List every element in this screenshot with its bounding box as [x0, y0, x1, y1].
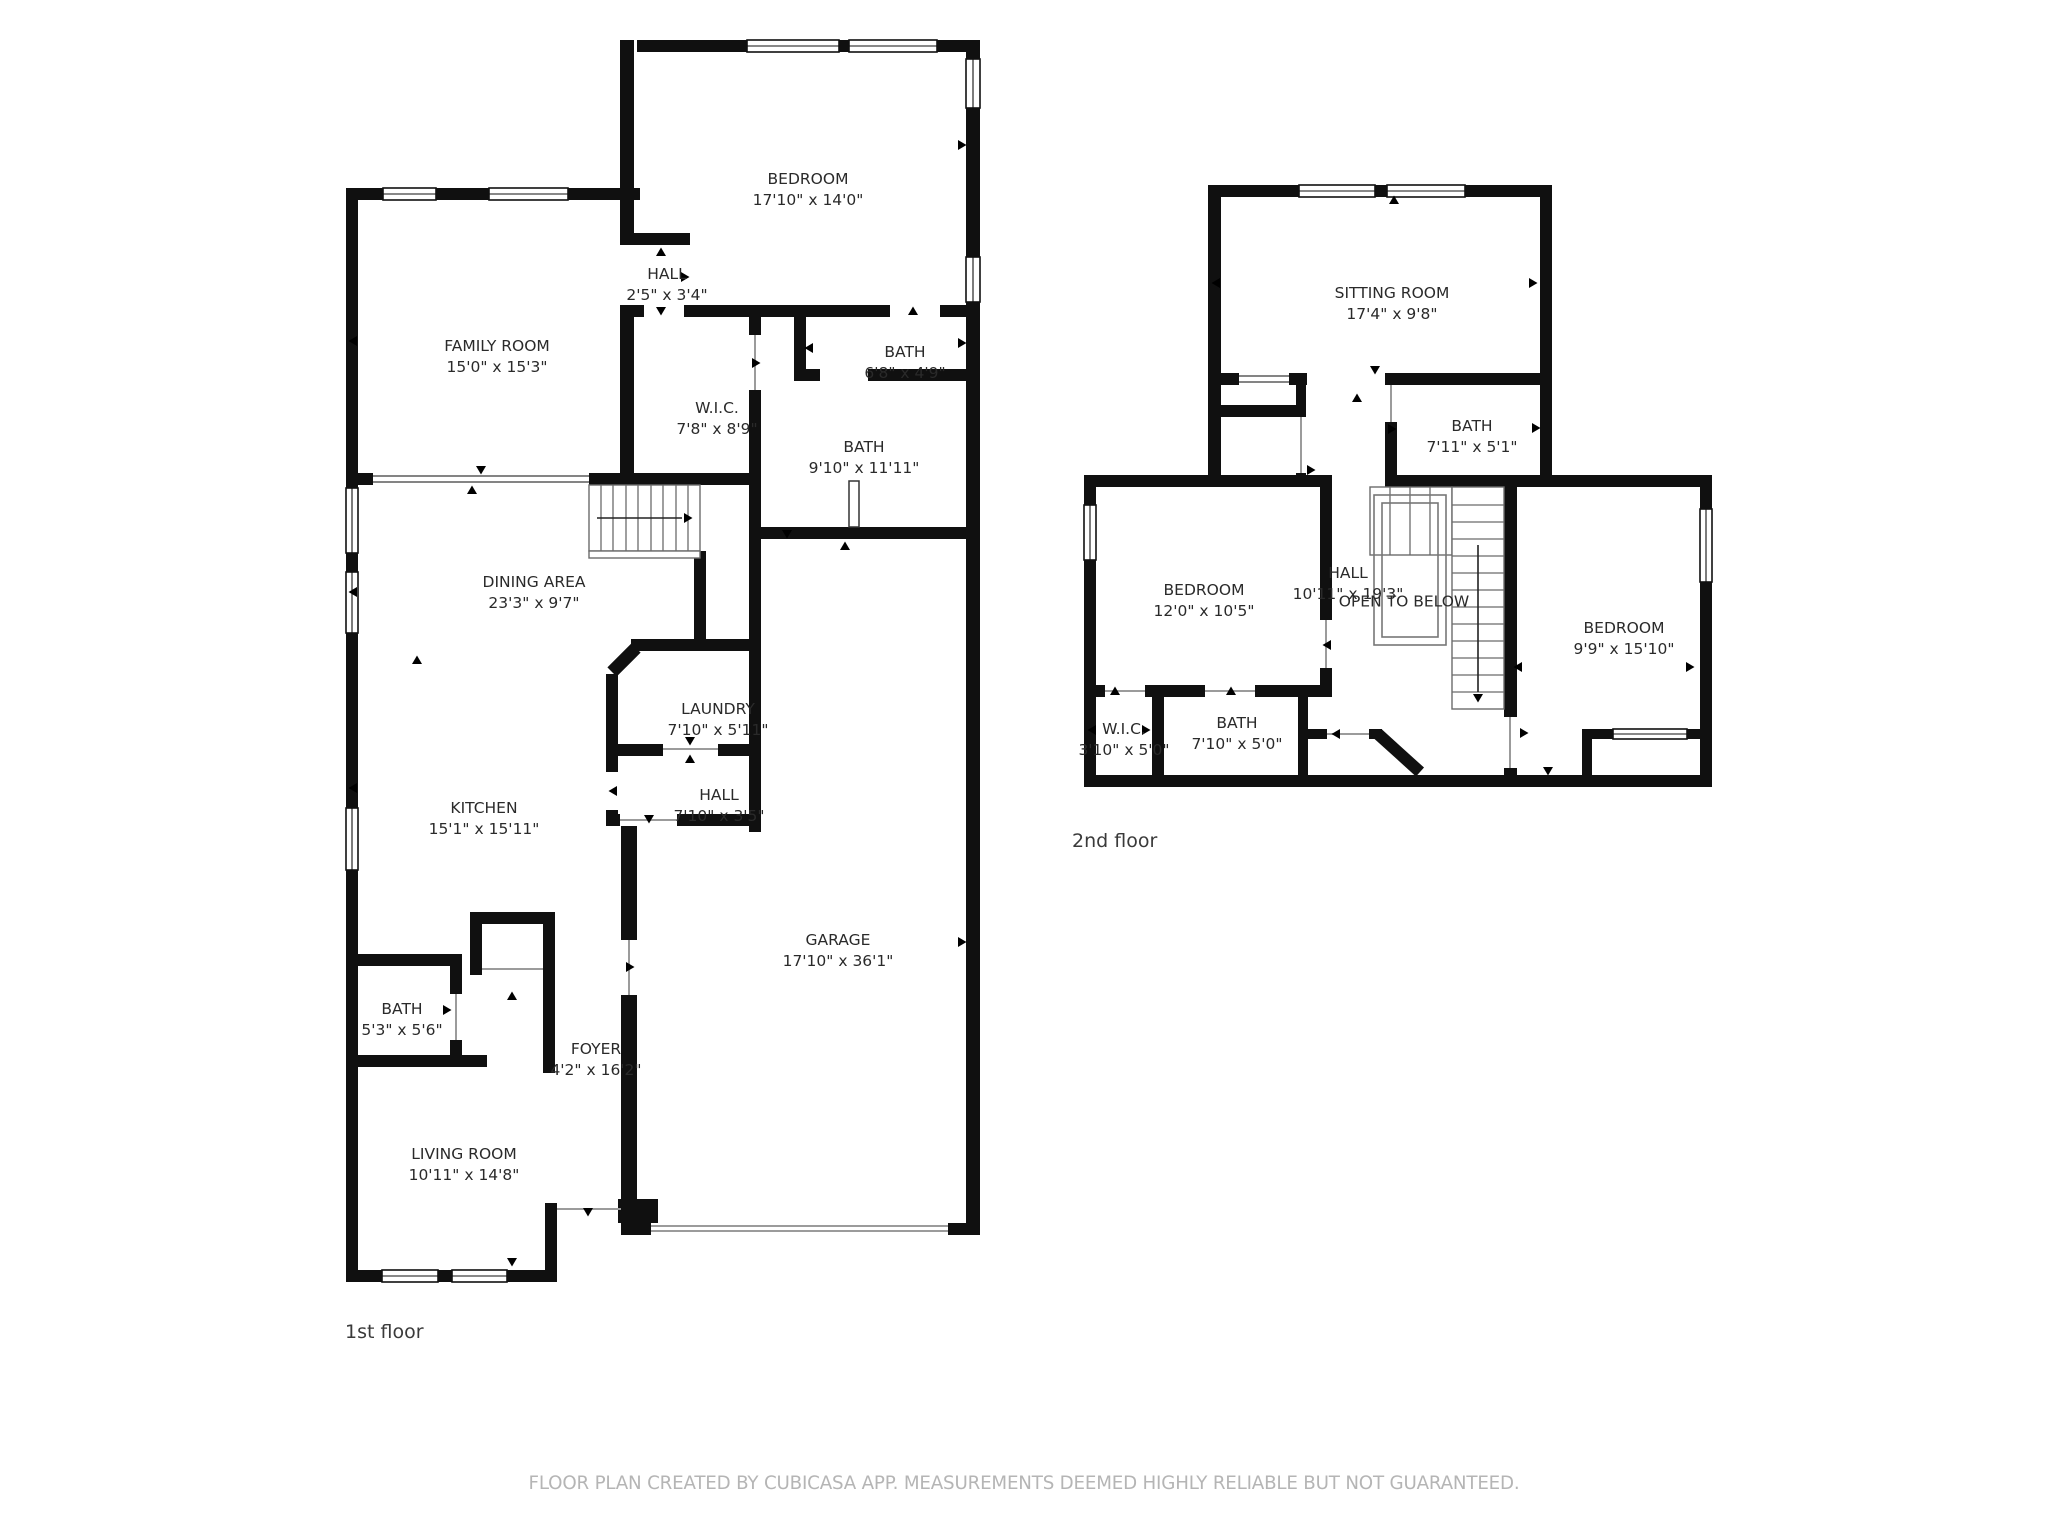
floor-plan-page: BEDROOM17'10" x 14'0"HALL2'5" x 3'4"FAMI…	[0, 0, 2048, 1536]
room-name: BATH	[361, 999, 442, 1020]
room-label-wic-1f: W.I.C.7'8" x 8'9"	[676, 398, 757, 440]
room-dimensions: 3'10" x 5'0"	[1078, 740, 1169, 761]
room-name: W.I.C.	[1078, 719, 1169, 740]
room-dimensions: 17'10" x 14'0"	[753, 190, 864, 211]
room-dimensions: 6'8" x 4'9"	[864, 363, 945, 384]
room-name: KITCHEN	[429, 798, 540, 819]
room-name: HALL	[1293, 563, 1404, 584]
room-label-bath-2f: BATH7'11" x 5'1"	[1426, 416, 1517, 458]
room-name: W.I.C.	[676, 398, 757, 419]
room-dimensions: 2'5" x 3'4"	[626, 285, 707, 306]
room-label-wic-2f: W.I.C.3'10" x 5'0"	[1078, 719, 1169, 761]
room-name: HALL	[673, 785, 764, 806]
room-dimensions: 4'2" x 16'2"	[550, 1060, 641, 1081]
room-label-hall-upper-1f: HALL2'5" x 3'4"	[626, 264, 707, 306]
first-floor-walls	[346, 40, 980, 1282]
room-label-foyer: FOYER4'2" x 16'2"	[550, 1039, 641, 1081]
room-name: GARAGE	[783, 930, 894, 951]
room-dimensions: 7'11" x 5'1"	[1426, 437, 1517, 458]
room-name: SITTING ROOM	[1335, 283, 1450, 304]
room-dimensions: 15'1" x 15'11"	[429, 819, 540, 840]
room-label-sitting-room: SITTING ROOM17'4" x 9'8"	[1335, 283, 1450, 325]
stairs-first-floor	[589, 485, 700, 558]
open-to-below-label: OPEN TO BELOW	[1339, 592, 1470, 613]
room-label-kitchen: KITCHEN15'1" x 15'11"	[429, 798, 540, 840]
floor-plan-drawing	[0, 0, 2048, 1536]
room-dimensions: 9'10" x 11'11"	[809, 458, 920, 479]
room-dimensions: 7'10" x 5'11"	[668, 720, 769, 741]
room-dimensions: 7'10" x 3'5"	[673, 806, 764, 827]
room-label-bath-small-1f: BATH6'8" x 4'9"	[864, 342, 945, 384]
room-dimensions: 15'0" x 15'3"	[444, 357, 550, 378]
room-name: BEDROOM	[753, 169, 864, 190]
second-floor-walls	[1084, 185, 1712, 787]
first-floor-windows	[346, 40, 980, 1282]
room-dimensions: 7'10" x 5'0"	[1191, 734, 1282, 755]
room-label-laundry: LAUNDRY7'10" x 5'11"	[668, 699, 769, 741]
room-dimensions: 7'8" x 8'9"	[676, 419, 757, 440]
room-dimensions: 9'9" x 15'10"	[1574, 639, 1675, 660]
room-name: LAUNDRY	[668, 699, 769, 720]
room-name: BEDROOM	[1574, 618, 1675, 639]
room-label-hall-1f: HALL7'10" x 3'5"	[673, 785, 764, 827]
room-dimensions: 17'4" x 9'8"	[1335, 304, 1450, 325]
room-dimensions: 5'3" x 5'6"	[361, 1020, 442, 1041]
room-label-bedroom-1f: BEDROOM17'10" x 14'0"	[753, 169, 864, 211]
room-name: BATH	[864, 342, 945, 363]
room-label-garage: GARAGE17'10" x 36'1"	[783, 930, 894, 972]
floor-label-1st: 1st floor	[345, 1321, 424, 1343]
room-label-bath-large-1f: BATH9'10" x 11'11"	[809, 437, 920, 479]
room-name: LIVING ROOM	[409, 1144, 520, 1165]
room-name: BATH	[1191, 713, 1282, 734]
room-dimensions: 17'10" x 36'1"	[783, 951, 894, 972]
floor-label-2nd: 2nd floor	[1072, 830, 1157, 852]
room-name: BATH	[809, 437, 920, 458]
room-label-family-room: FAMILY ROOM15'0" x 15'3"	[444, 336, 550, 378]
room-label-dining-area: DINING AREA23'3" x 9'7"	[483, 572, 586, 614]
room-name: DINING AREA	[483, 572, 586, 593]
room-dimensions: 12'0" x 10'5"	[1154, 601, 1255, 622]
room-label-bath-small-2f: BATH7'10" x 5'0"	[1191, 713, 1282, 755]
room-label-living-room: LIVING ROOM10'11" x 14'8"	[409, 1144, 520, 1186]
room-name: FOYER	[550, 1039, 641, 1060]
footer-disclaimer: FLOOR PLAN CREATED BY CUBICASA APP. MEAS…	[529, 1472, 1520, 1494]
room-name: FAMILY ROOM	[444, 336, 550, 357]
room-label-bedroom-12-2f: BEDROOM12'0" x 10'5"	[1154, 580, 1255, 622]
room-dimensions: 10'11" x 14'8"	[409, 1165, 520, 1186]
room-dimensions: 23'3" x 9'7"	[483, 593, 586, 614]
room-label-bedroom-99-2f: BEDROOM9'9" x 15'10"	[1574, 618, 1675, 660]
room-name: BEDROOM	[1154, 580, 1255, 601]
room-label-bath-1f: BATH5'3" x 5'6"	[361, 999, 442, 1041]
room-name: BATH	[1426, 416, 1517, 437]
room-name: HALL	[626, 264, 707, 285]
